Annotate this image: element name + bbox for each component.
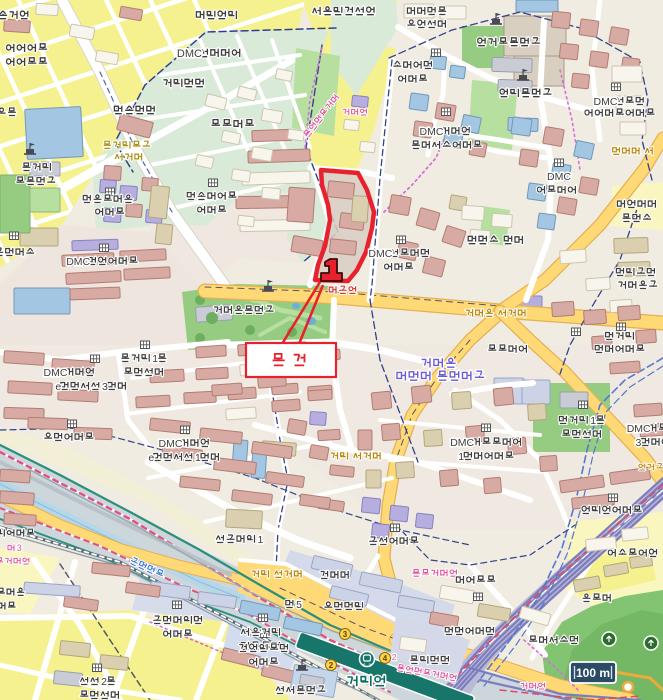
svg-text:1: 1: [590, 415, 596, 427]
svg-text:4: 4: [383, 654, 388, 663]
svg-text:1: 1: [458, 451, 464, 463]
svg-text:e: e: [55, 381, 61, 393]
svg-text:DMC: DMC: [44, 367, 68, 379]
svg-text:1: 1: [195, 452, 201, 464]
svg-text:DMC: DMC: [177, 48, 202, 60]
svg-text:3: 3: [636, 437, 642, 449]
svg-text:DMC: DMC: [368, 248, 392, 260]
svg-text:1: 1: [152, 353, 158, 365]
svg-text:2: 2: [101, 676, 107, 688]
svg-text:DMC: DMC: [159, 438, 183, 450]
svg-text:1: 1: [258, 534, 264, 546]
svg-text:2: 2: [392, 652, 397, 662]
svg-text:DMC: DMC: [420, 126, 444, 138]
svg-text:100 m: 100 m: [576, 666, 610, 680]
svg-text:DMC: DMC: [66, 256, 90, 268]
svg-text:DMC: DMC: [627, 423, 651, 435]
svg-text:DMC: DMC: [594, 96, 618, 108]
svg-text:2: 2: [329, 661, 334, 670]
svg-text:DMC: DMC: [450, 437, 474, 449]
svg-text:3: 3: [102, 381, 108, 393]
svg-text:3: 3: [17, 543, 22, 553]
svg-text:5: 5: [296, 599, 302, 611]
svg-text:3: 3: [343, 630, 348, 639]
svg-text:DMC: DMC: [547, 171, 571, 183]
svg-text:e: e: [148, 452, 154, 464]
